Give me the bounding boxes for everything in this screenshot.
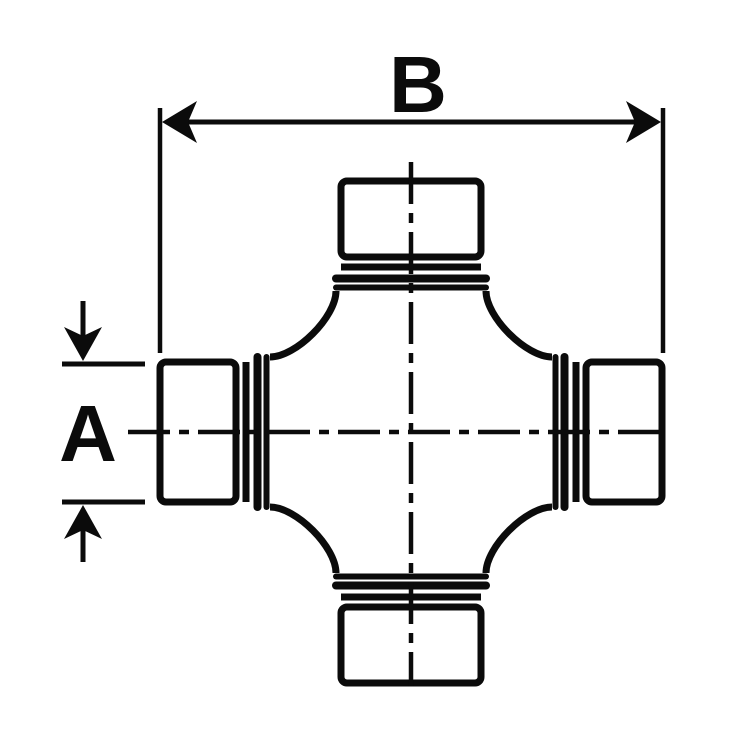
body-fillet-top-left [270, 291, 336, 357]
drawing-canvas: B A [0, 0, 754, 754]
u-joint-cross-part [128, 162, 663, 686]
body-fillet-bottom-left [270, 507, 336, 573]
u-joint-cross-technical-drawing: B A [0, 0, 754, 754]
dim-a-label: A [59, 389, 117, 478]
body-fillet-top-right [486, 291, 552, 357]
dim-b-label: B [389, 40, 447, 129]
body-fillet-bottom-right [486, 507, 552, 573]
